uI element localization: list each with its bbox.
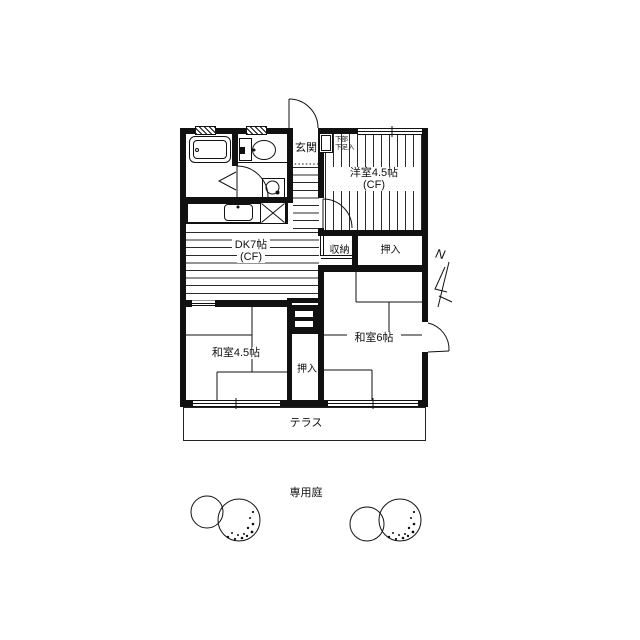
washroom-door-swing — [237, 166, 268, 197]
shoe-cabinet-label-line1: 下部 — [335, 136, 361, 144]
tree-texture-dots — [227, 511, 416, 540]
floor-plan: N 玄関 下部 下足入 洋室4.5帖 (CF) DK7 — [0, 0, 640, 640]
sink-faucet-dot — [237, 206, 240, 209]
bathroom-door-swing — [219, 172, 236, 190]
closet-upper-label: 押入 — [374, 245, 407, 256]
garden-trees — [191, 496, 421, 541]
shoe-cabinet-label: 下部 下足入 — [334, 136, 362, 151]
gas-stove-icon — [262, 204, 285, 223]
dk-floor-note-text: (CF) — [237, 251, 265, 263]
western-room-name: 洋室4.5帖 — [333, 167, 415, 179]
terrace-label: テラス — [282, 417, 330, 429]
western-room-label: 洋室4.5帖 (CF) — [332, 167, 416, 191]
garden-label: 専用庭 — [285, 487, 327, 499]
tatami45-label: 和室4.5帖 — [196, 347, 276, 359]
north-arrow: N — [434, 246, 452, 307]
dk-name: DK7帖 — [232, 239, 270, 251]
window-bottom-tatami6 — [328, 398, 418, 409]
storage-label: 収納 — [324, 245, 355, 256]
dk-floor-note: (CF) — [213, 251, 289, 263]
dk-label: DK7帖 (CF) — [212, 239, 290, 263]
tree-icon — [379, 499, 421, 541]
window-top — [358, 126, 422, 137]
window-bottom-tatami45 — [193, 398, 280, 409]
entrance-door-swing — [289, 99, 318, 128]
north-label: N — [434, 246, 447, 263]
closet-lower-label: 押入 — [293, 364, 321, 375]
western-room-door-swing — [323, 199, 352, 228]
tatami6-label: 和室6帖 — [347, 332, 401, 344]
western-room-floor-note: (CF) — [333, 179, 415, 191]
shoe-cabinet-label-line2: 下足入 — [335, 144, 361, 152]
toilet-icon — [253, 141, 276, 160]
east-door-swing — [428, 323, 449, 352]
entrance-label: 玄関 — [290, 142, 322, 154]
tree-icon — [218, 499, 260, 541]
washing-machine-icon — [266, 181, 280, 195]
plan-linework: N — [0, 0, 640, 640]
